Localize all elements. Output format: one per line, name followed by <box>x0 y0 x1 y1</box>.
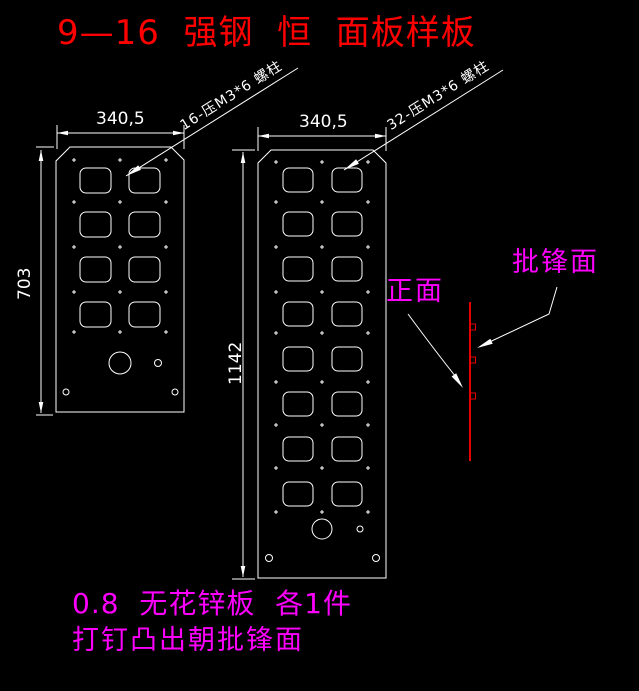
right-height-dimension-label: 1142 <box>228 342 246 385</box>
annotation-arrow-icon <box>477 339 493 348</box>
left-stud-leader <box>126 68 298 176</box>
front-face-arrow <box>408 314 463 388</box>
instruction-note: 打钉凸出朝批锋面 <box>72 627 304 655</box>
left-height-dimension <box>36 147 54 415</box>
dim-arrow-icon <box>241 152 246 163</box>
left-height-dimension-label: 703 <box>17 268 35 300</box>
burr-face-label: 批锋面 <box>512 249 599 277</box>
annotation-arrow-icon <box>452 373 463 388</box>
cad-drawing-canvas: 9—16 强钢 恒 面板样板 340,5 340,5 703 1142 16-压… <box>0 0 639 691</box>
right-width-dimension-label: 340,5 <box>299 114 348 132</box>
burr-face-arrow <box>477 287 557 348</box>
right-panel-geometry <box>258 150 386 578</box>
dim-arrow-icon <box>258 134 269 139</box>
dim-arrow-icon <box>57 131 68 136</box>
dim-arrow-icon <box>375 134 386 139</box>
right-stud-leader <box>344 70 503 170</box>
drawing-title: 9—16 强钢 恒 面板样板 <box>57 16 476 52</box>
left-panel-geometry <box>56 147 184 412</box>
stud-protrusion-icon <box>471 324 476 399</box>
dim-arrow-icon <box>241 566 246 577</box>
dim-arrow-icon <box>39 402 44 413</box>
front-face-label: 正面 <box>386 278 444 306</box>
leader-arrow-icon <box>126 165 141 176</box>
left-width-dimension-label: 340,5 <box>96 111 145 129</box>
dim-arrow-icon <box>173 131 184 136</box>
dim-arrow-icon <box>39 150 44 161</box>
panel-edge-side-view <box>470 302 476 461</box>
material-note: 0.8 无花锌板 各1件 <box>72 589 352 618</box>
